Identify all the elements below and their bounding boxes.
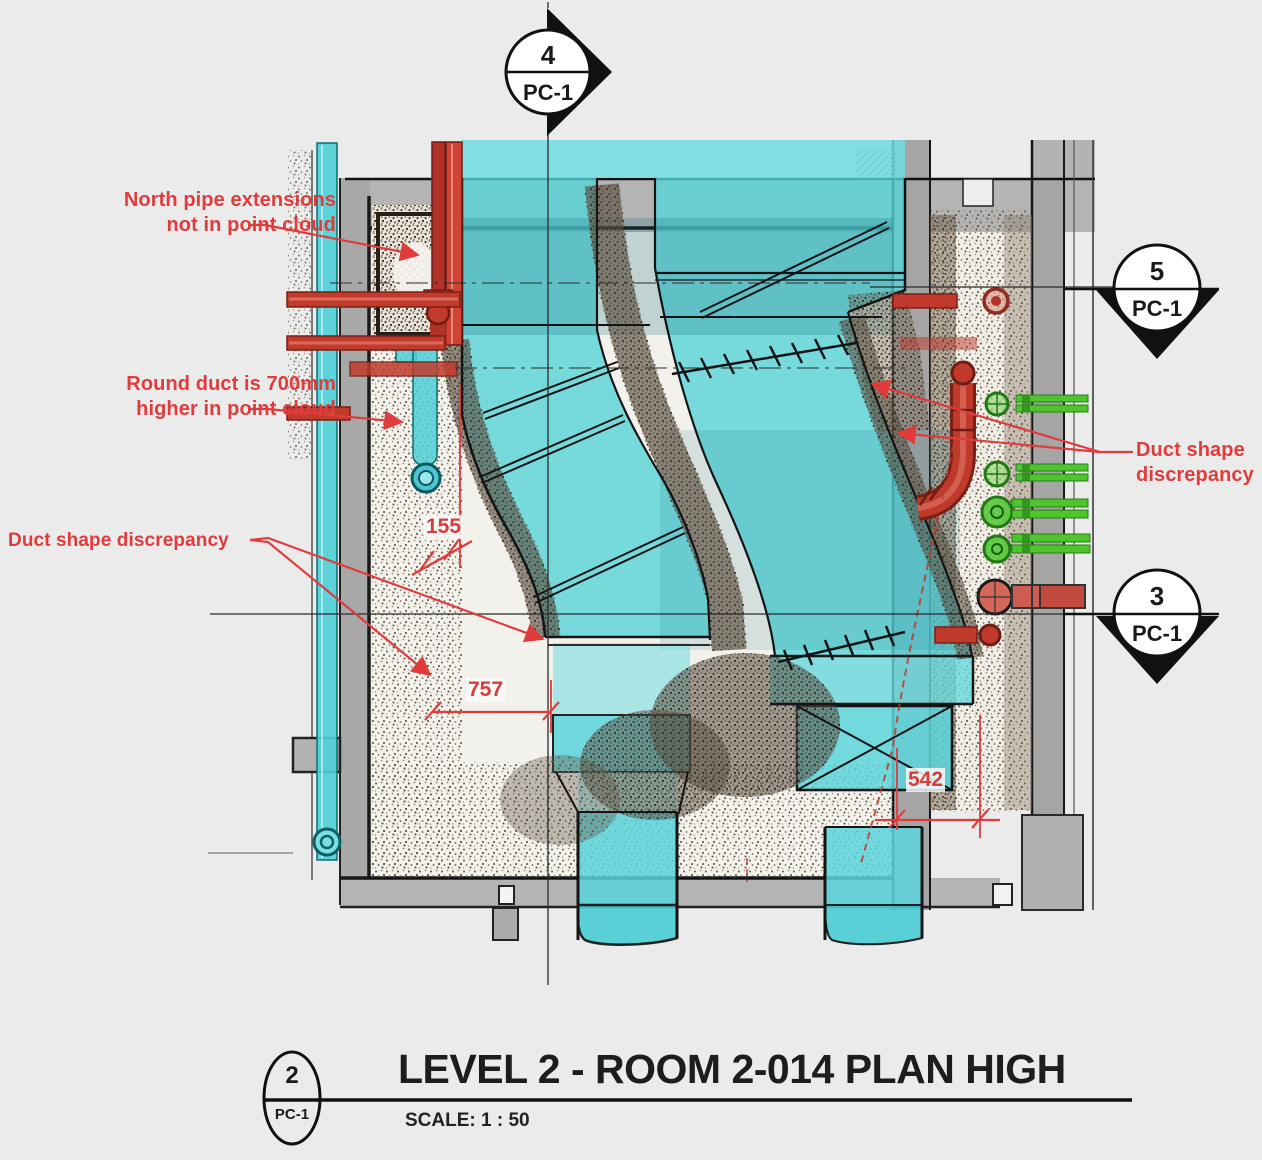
annotation-line: North pipe extensions <box>28 188 336 213</box>
drawing-sheet: North pipe extensions not in point cloud… <box>0 0 1262 1160</box>
view-title: LEVEL 2 - ROOM 2-014 PLAN HIGH <box>398 1046 1066 1093</box>
dimension-text-155: 155 <box>424 515 463 539</box>
marker-3-sheet: PC-1 <box>1112 621 1202 647</box>
marker-3-number: 3 <box>1112 581 1202 612</box>
marker-4-number: 4 <box>503 40 593 71</box>
marker-5-sheet: PC-1 <box>1112 296 1202 322</box>
marker-4-sheet: PC-1 <box>503 80 593 106</box>
dimension-text-542: 542 <box>906 768 945 792</box>
annotation-line: Duct shape <box>1136 438 1262 463</box>
marker-5-number: 5 <box>1112 256 1202 287</box>
annotation-north-pipe: North pipe extensions not in point cloud <box>28 188 336 238</box>
annotation-round-duct: Round duct is 700mm higher in point clou… <box>28 372 336 422</box>
annotation-line: not in point cloud <box>28 213 336 238</box>
marker-2-number: 2 <box>264 1062 320 1090</box>
annotation-duct-shape-right: Duct shape discrepancy <box>1136 438 1262 488</box>
dimension-text-757: 757 <box>466 678 505 702</box>
marker-2-sheet: PC-1 <box>264 1106 320 1123</box>
section-marker-4[interactable] <box>506 8 612 136</box>
annotation-duct-shape-left: Duct shape discrepancy <box>8 528 268 553</box>
annotation-line: Duct shape discrepancy <box>8 528 268 553</box>
plan-canvas <box>0 0 1262 1160</box>
annotation-line: Round duct is 700mm <box>28 372 336 397</box>
annotation-line: discrepancy <box>1136 463 1262 488</box>
pipe-cyan-left <box>317 143 337 860</box>
annotation-line: higher in point cloud <box>28 397 336 422</box>
view-scale: SCALE: 1 : 50 <box>405 1110 530 1132</box>
